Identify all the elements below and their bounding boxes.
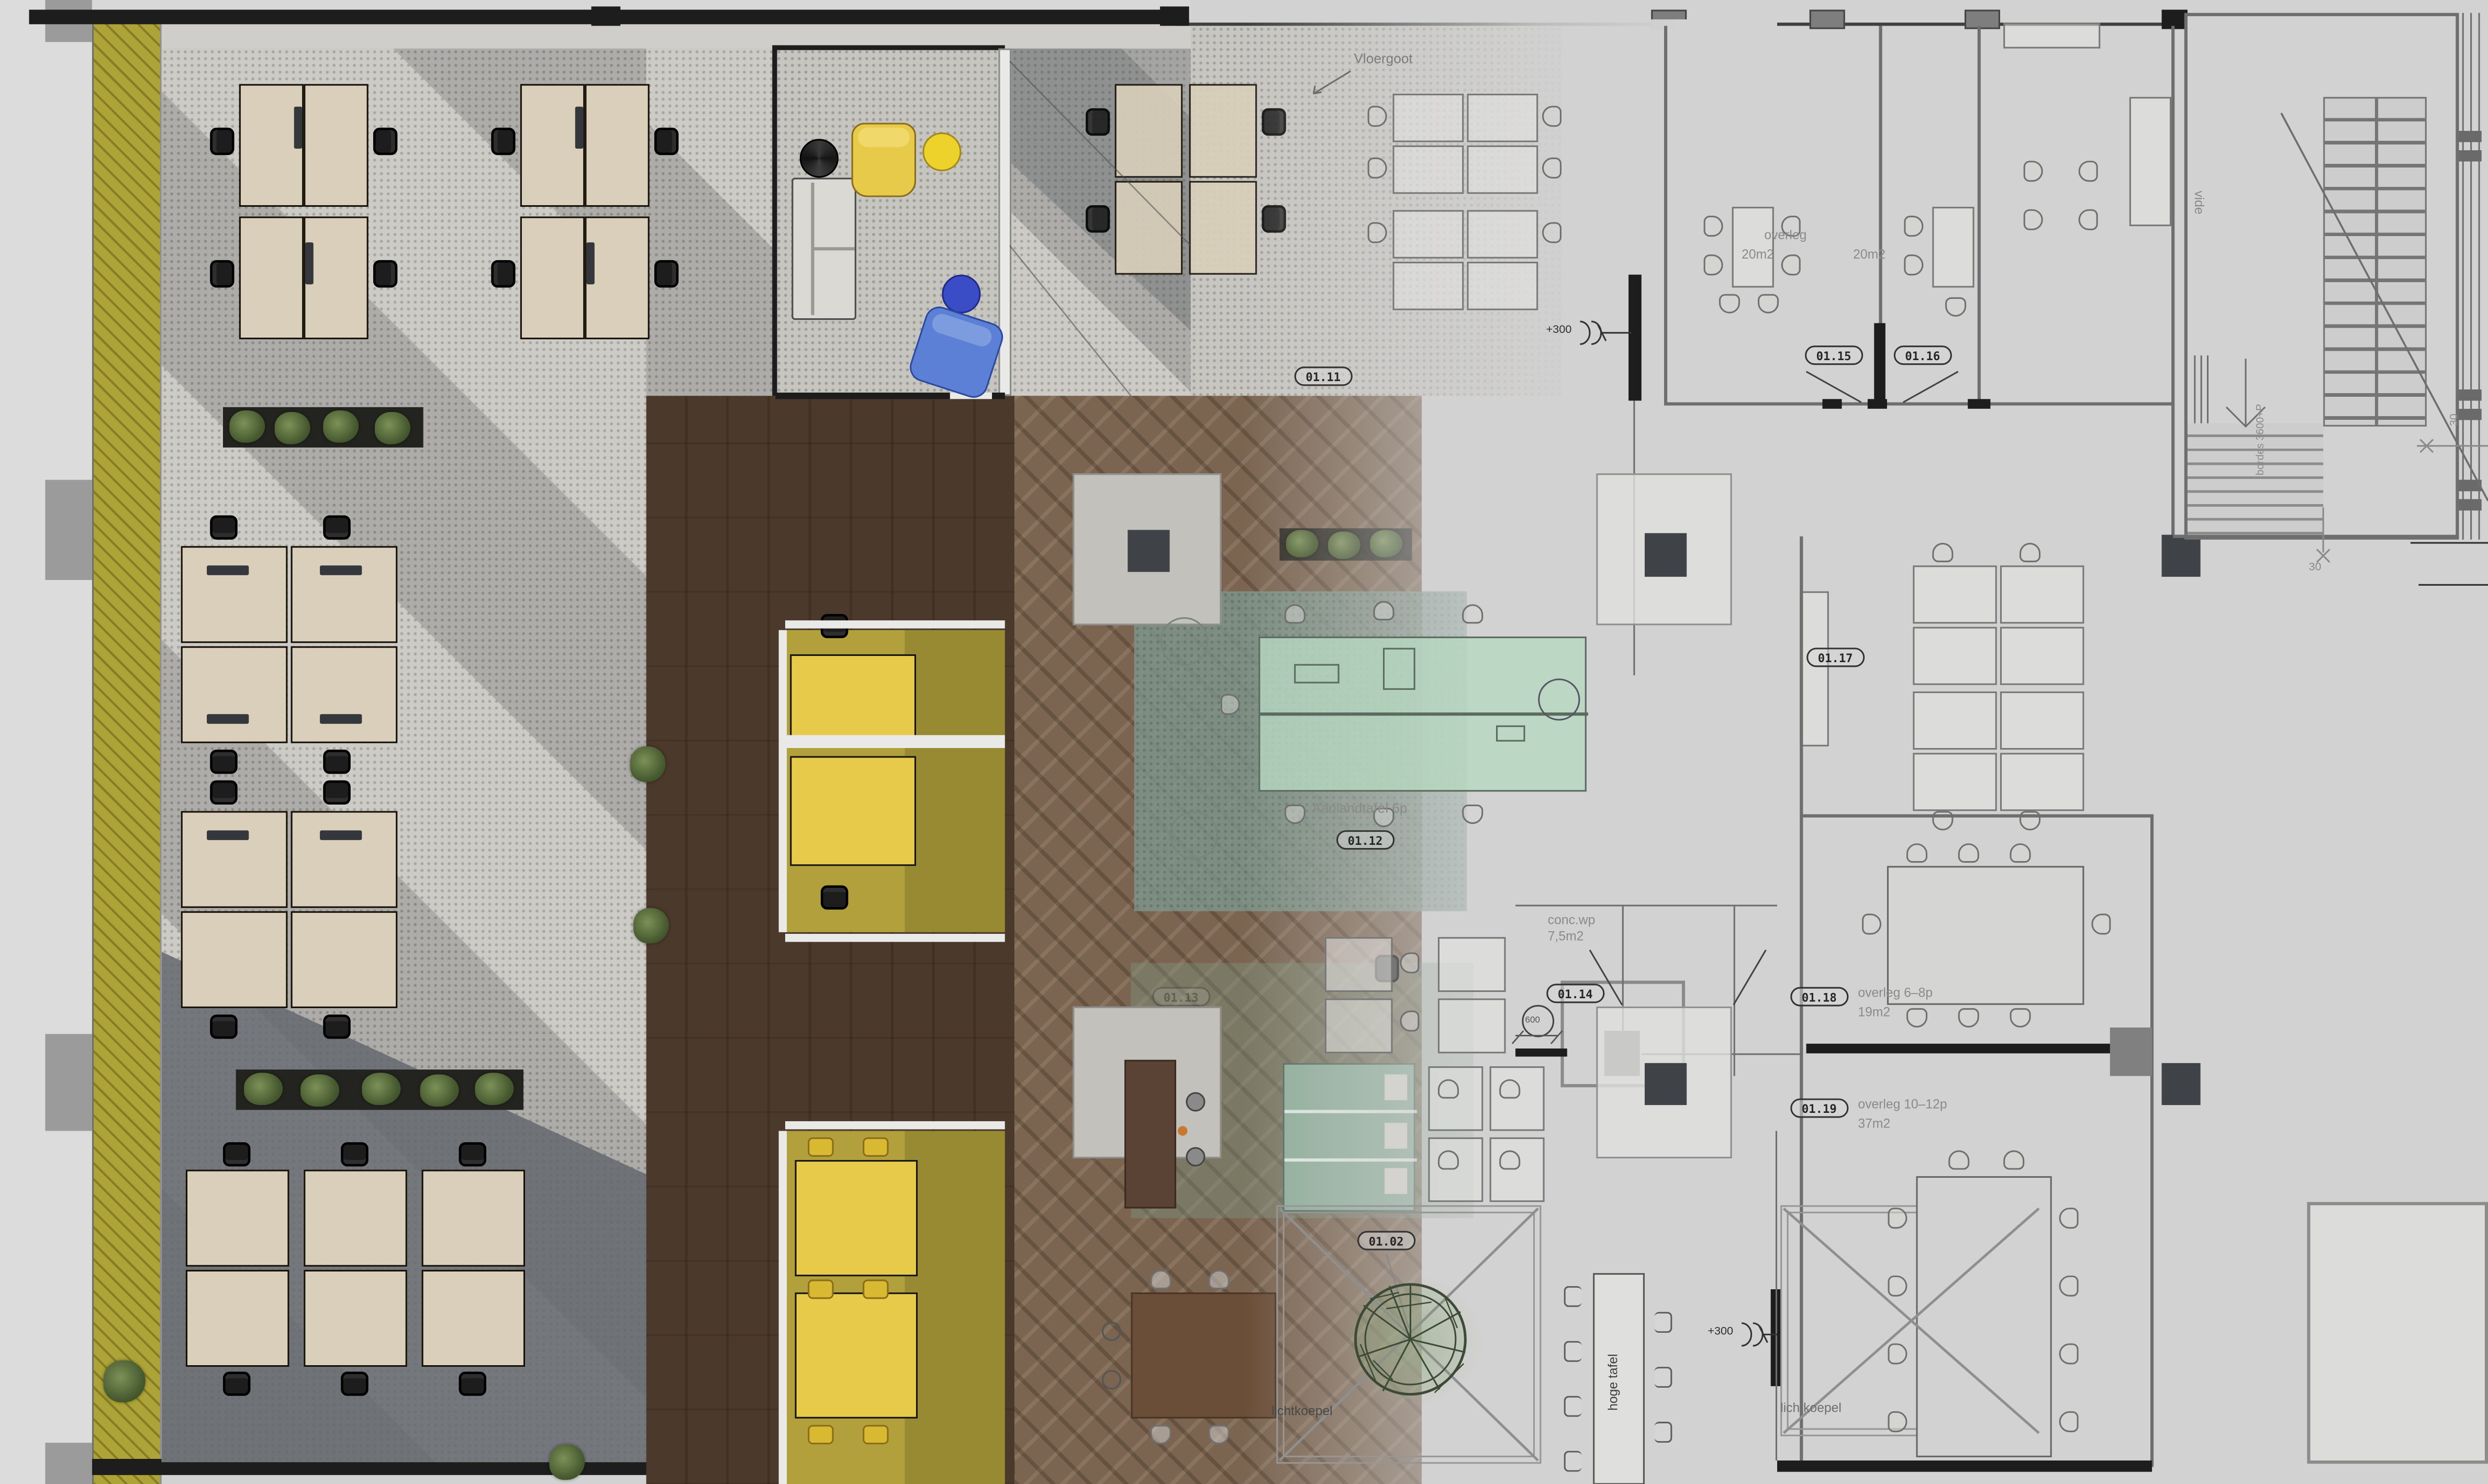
label-dim-30-bottom: 30: [2308, 562, 2321, 576]
vloergoot-leader: [1313, 71, 1351, 94]
label-conc-wp: conc.wp: [1548, 913, 1596, 929]
tree-symbol: [1351, 1279, 1470, 1399]
dimension-marks: [1512, 440, 2488, 1044]
label-lichtkoepel-left: lichtkoepel: [1271, 1404, 1333, 1420]
label-level-bottom: +300: [1708, 1326, 1733, 1340]
level-mark-symbols: [1580, 321, 1777, 1346]
label-area-room-a: 20m2: [1742, 247, 1774, 263]
label-vloergoot: Vloergoot: [1354, 50, 1412, 66]
floor-plan-drawing: Vloergoot overleg 20m2 20m2 vide bordes …: [0, 0, 2488, 1484]
label-overleg-1012-area: 37m2: [1858, 1117, 1890, 1132]
edge-lines: [2411, 543, 2488, 585]
label-lichtkoepel-right: lichtkoepel: [1780, 1401, 1842, 1416]
linework-overlay: [0, 0, 2488, 1484]
glass-diagonals: [1010, 61, 1191, 396]
door-swings: [1590, 372, 1958, 1005]
label-overleg-top: overleg: [1764, 228, 1806, 243]
room-badge-01-15: 01.15: [1805, 345, 1862, 365]
room-badge-01-14: 01.14: [1546, 984, 1604, 1003]
room-badge-01-16: 01.16: [1894, 345, 1951, 365]
label-hoge-tafel: hoge tafel: [1606, 1354, 1622, 1410]
label-dim-30-right: 30: [2449, 414, 2463, 426]
label-area-room-b: 20m2: [1853, 247, 1885, 263]
label-conc-wp-area: 7,5m2: [1548, 929, 1584, 945]
room-badge-01-02: 01.02: [1357, 1231, 1415, 1251]
label-overleg-68: overleg 6–8p: [1858, 986, 1933, 1001]
room-badge-01-17: 01.17: [1806, 648, 1864, 667]
room-badge-01-13: 01.13: [1152, 987, 1210, 1007]
room-badge-01-11: 01.11: [1295, 366, 1352, 386]
room-badge-01-12: 01.12: [1336, 830, 1394, 850]
label-overleg-1012: overleg 10–12p: [1858, 1097, 1947, 1113]
label-bordes: bordes 3600+P: [2256, 404, 2268, 476]
label-aanlandtafel: Aanlandtafel 6p: [1312, 800, 1407, 816]
label-dim-600: 600: [1525, 1016, 1540, 1026]
label-overleg-68-area: 19m2: [1858, 1005, 1890, 1021]
room-badge-01-19: 01.19: [1790, 1098, 1848, 1118]
label-vide: vide: [2191, 191, 2206, 214]
room-badge-01-18: 01.18: [1790, 987, 1848, 1007]
screenshot-stage: Vloergoot overleg 20m2 20m2 vide bordes …: [0, 0, 2488, 1484]
label-level-top: +300: [1546, 325, 1572, 338]
